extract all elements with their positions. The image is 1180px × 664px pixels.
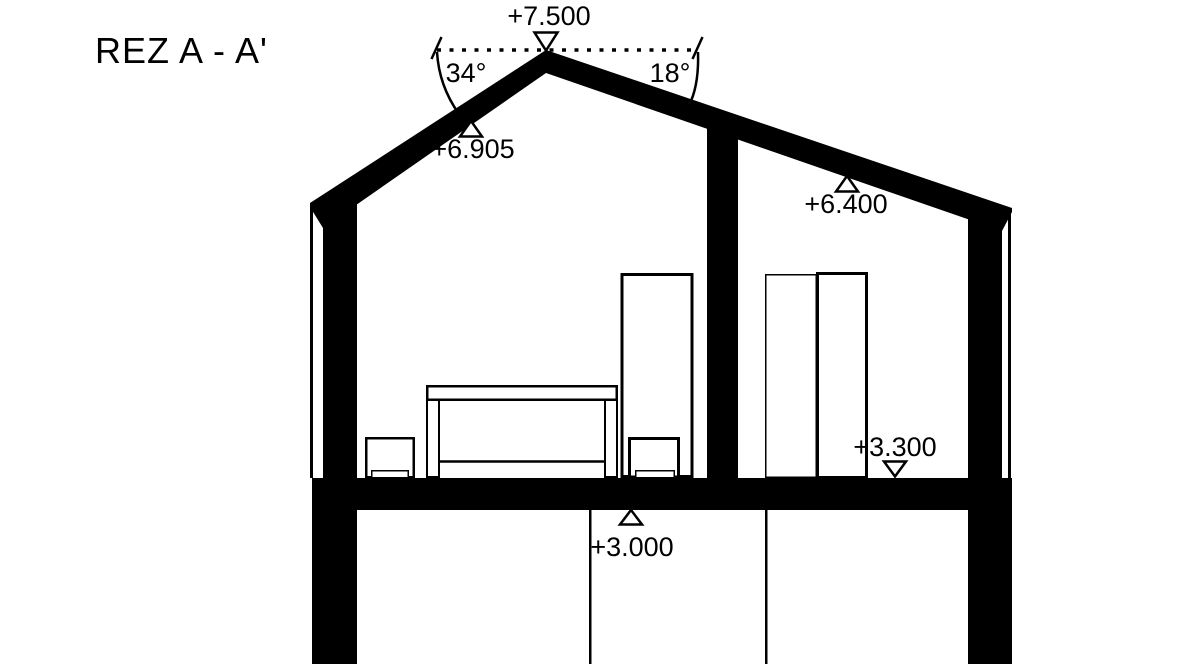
bed-headboard-plank	[427, 386, 617, 400]
left-pitch-angle-label: 34°	[446, 58, 487, 88]
right-foundation-wall	[968, 508, 1012, 664]
left-wall-cladding-line	[310, 206, 313, 478]
left-exterior-wall	[323, 194, 357, 478]
left-foundation-wall	[312, 508, 357, 664]
right-exterior-wall	[968, 218, 1002, 478]
lower-partition-line-right	[765, 510, 768, 664]
right-wall-cladding-line	[1008, 212, 1011, 478]
section-title: REZ A - A'	[95, 30, 268, 71]
middle-wall	[707, 117, 738, 478]
right-room-furniture	[766, 274, 867, 478]
nightstand-right-plinth	[636, 471, 675, 478]
upper-floor-level-label: +3.300	[853, 432, 936, 462]
tall-cabinet-left	[766, 275, 817, 478]
section-drawing: REZ A - A' +7.500 34° 18° +6.905 +6.400 …	[0, 0, 1180, 664]
nightstand-left-plinth	[372, 471, 409, 478]
drawing-canvas: REZ A - A' +7.500 34° 18° +6.905 +6.400 …	[0, 0, 1180, 664]
bed-rail-left	[427, 400, 439, 477]
ridge-level-label: +7.500	[507, 1, 590, 31]
right-pitch-angle-label: 18°	[650, 58, 691, 88]
right-roof-level-label: +6.400	[804, 189, 887, 219]
floor-slab	[312, 478, 1012, 510]
bed-rail-right	[605, 400, 617, 477]
slab-level-label: +3.000	[590, 532, 673, 562]
left-roof-level-label: +6.905	[431, 134, 514, 164]
